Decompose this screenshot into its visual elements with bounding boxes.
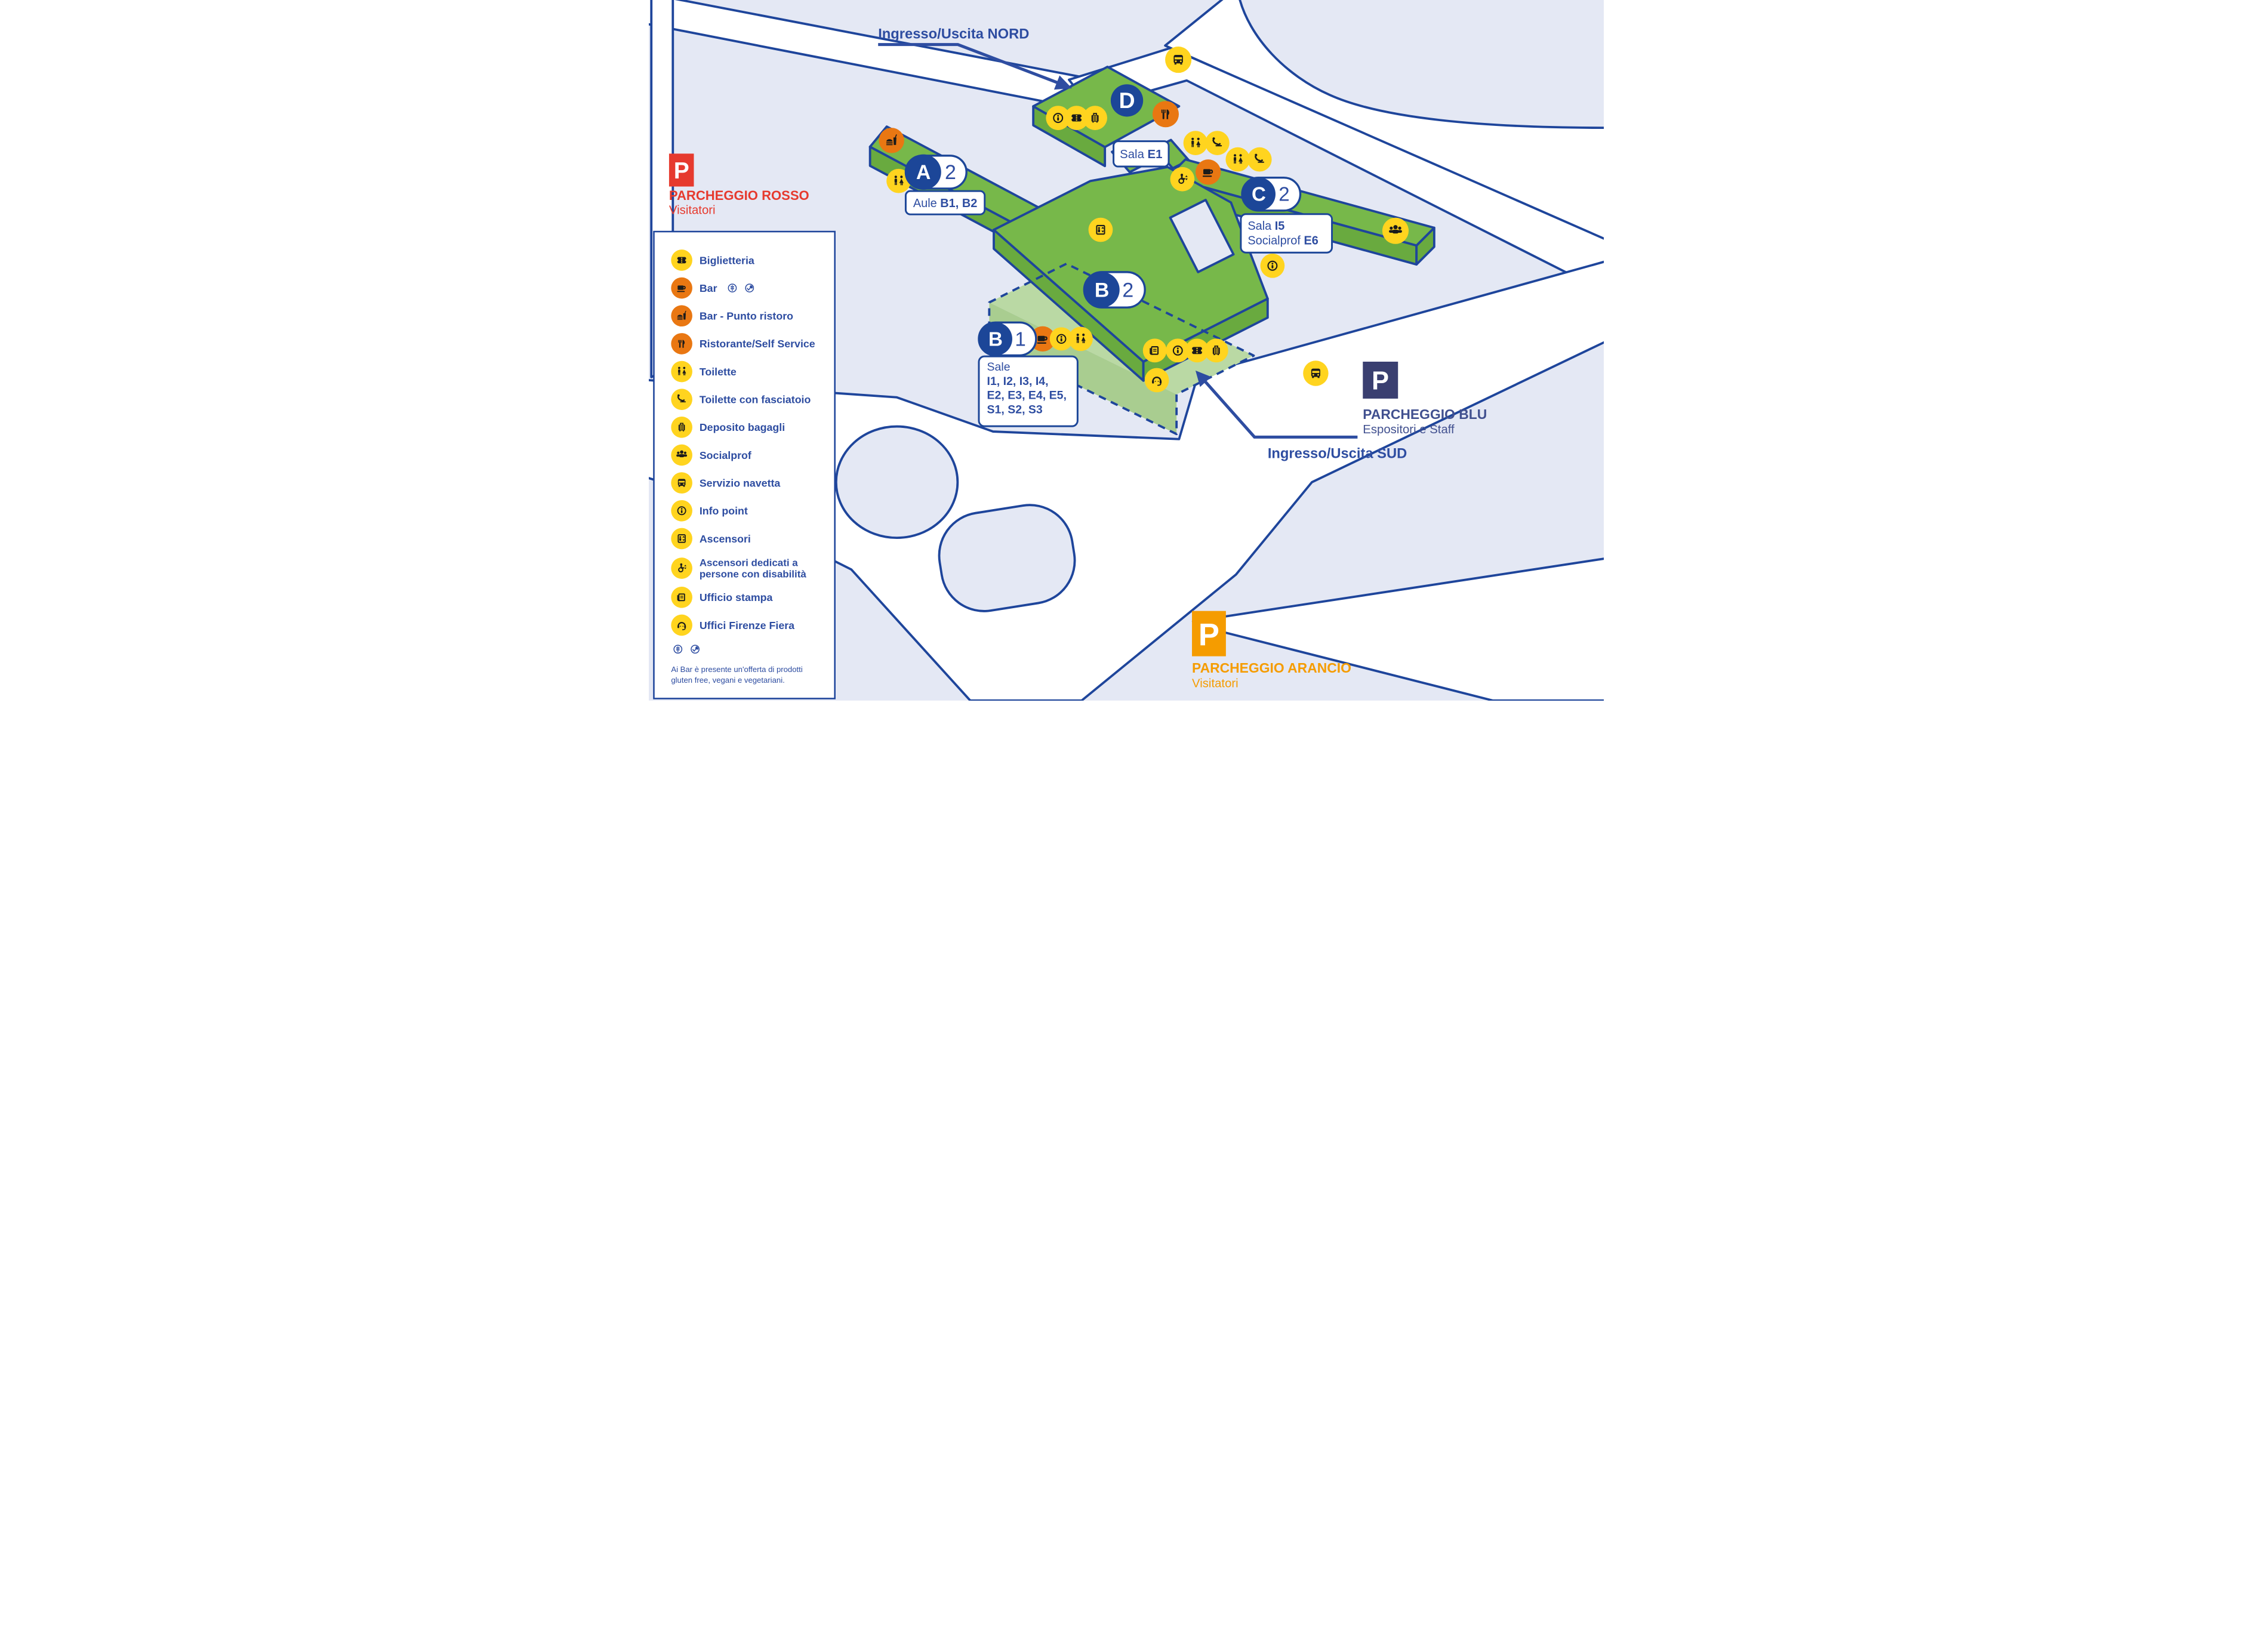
parking-arancio-name: PARCHEGGIO ARANCIO [1192, 660, 1351, 676]
parking-blu-p: P [1372, 367, 1389, 396]
legend-label: Biglietteria [699, 254, 754, 266]
label-c-line1: Sala I5 [1247, 220, 1284, 233]
parking-arancio-p: P [1198, 617, 1219, 652]
label-aule-text: Aule B1, B2 [913, 197, 976, 210]
label-sala-e1-text: Sala E1 [1120, 148, 1162, 161]
badge-a-letter: A [916, 161, 931, 184]
parking-rosso-sub: Visitatori [668, 204, 715, 217]
legend-label: Bar - Punto ristoro [699, 310, 793, 322]
legend-label: Toilette con fasciatoio [699, 394, 811, 406]
legend-label: Deposito bagagli [699, 421, 784, 433]
parking-blu-sub: Espositori e Staff [1363, 423, 1455, 436]
ticket-icon [1191, 347, 1203, 354]
legend-label: Servizio navetta [699, 477, 781, 489]
parking-blu-name: PARCHEGGIO BLU [1363, 406, 1487, 422]
label-sale-line1: I1, I2, I3, I4, [987, 375, 1048, 388]
parking-rosso-p: P [673, 158, 689, 184]
legend-label: Ascensori [699, 533, 750, 545]
bus-icon [1311, 369, 1320, 378]
legend-label: Ufficio stampa [699, 591, 773, 603]
legend-label: Socialprof [699, 449, 751, 461]
badge-b1-level: 1 [1015, 328, 1025, 350]
legend-label: Ristorante/Self Service [699, 338, 815, 350]
label-sale-title: Sale [987, 360, 1010, 374]
roundabout-island [836, 427, 957, 538]
legend-label: Toilette [699, 366, 736, 378]
entrance-north-label: Ingresso/Uscita NORD [878, 26, 1029, 42]
label-sale-line3: S1, S2, S3 [987, 403, 1042, 416]
legend-panel: Biglietteria Bar Bar - Punto ristoro Ris… [654, 232, 834, 698]
label-c-line2: Socialprof E6 [1247, 235, 1318, 248]
parking-arancio-sub: Visitatori [1192, 677, 1239, 691]
legend-label: Uffici Firenze Fiera [699, 619, 794, 631]
ticket-icon [676, 257, 687, 264]
bus-icon [1173, 55, 1182, 64]
badge-b2-level: 2 [1122, 279, 1133, 301]
fair-map: Ingresso/Uscita NORD Ingresso/Uscita SUD [649, 0, 1604, 701]
legend-label-line2: persone con disabilità [699, 568, 806, 580]
ticket-icon [1070, 115, 1082, 122]
legend-label: Info point [699, 505, 747, 517]
badge-b1-letter: B [988, 328, 1003, 350]
legend-footnote-line2: gluten free, vegani e vegetariani. [671, 676, 784, 685]
entrance-south-label: Ingresso/Uscita SUD [1267, 446, 1406, 462]
label-sale-line2: E2, E3, E4, E5, [987, 389, 1066, 402]
badge-c-level: 2 [1279, 184, 1289, 206]
bus-icon [677, 479, 685, 487]
parking-rosso-name: PARCHEGGIO ROSSO [668, 188, 809, 203]
legend-label: Bar [699, 282, 717, 294]
legend-label: Ascensori dedicati a [699, 557, 797, 569]
venue-map-page: Ingresso/Uscita NORD Ingresso/Uscita SUD [649, 0, 1604, 701]
legend-footnote-line1: Ai Bar è presente un'offerta di prodotti [671, 665, 803, 674]
badge-a-level: 2 [945, 161, 956, 184]
badge-c-letter: C [1252, 184, 1266, 206]
badge-d-letter: D [1119, 88, 1135, 113]
badge-b2-letter: B [1094, 279, 1109, 301]
